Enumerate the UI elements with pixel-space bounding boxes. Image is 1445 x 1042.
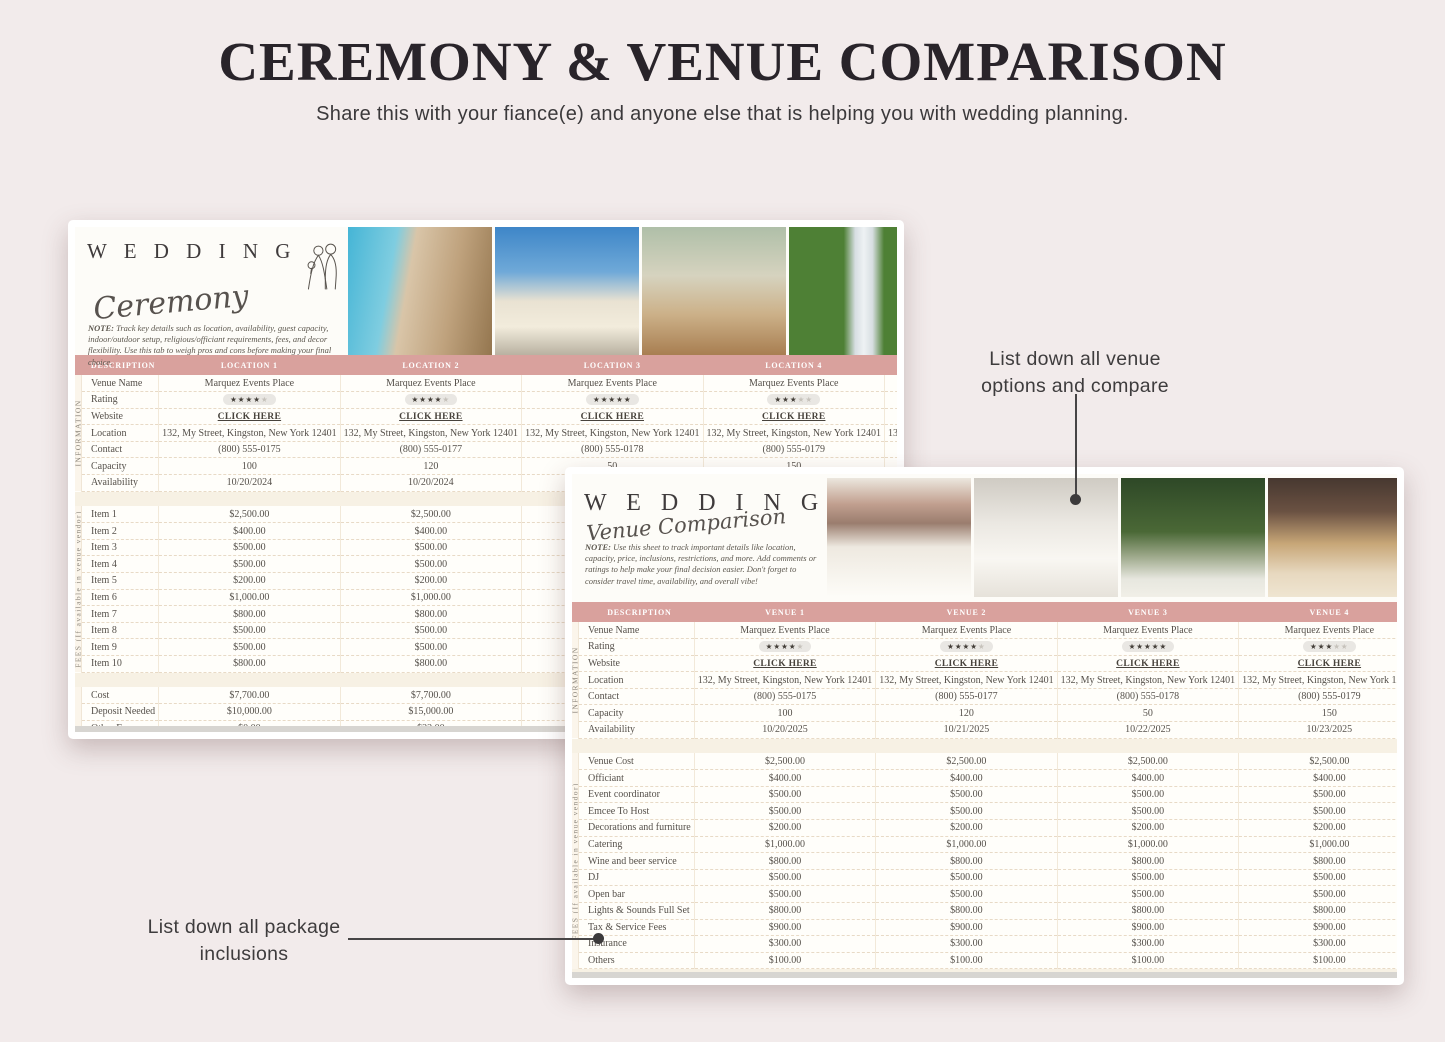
row-label: Location xyxy=(82,425,159,442)
cell: (800) 555-0178 xyxy=(522,441,703,458)
cell: $800.00 xyxy=(1057,853,1238,870)
column-header: LOCATION 2 xyxy=(340,355,521,375)
cell: 100 xyxy=(694,705,875,722)
cell: $200.00 xyxy=(340,573,521,590)
cell: Marquez Events Place xyxy=(876,622,1057,639)
cell: CLICK HERE xyxy=(1057,655,1238,672)
cell: $300.00 xyxy=(694,936,875,953)
cell: $900.00 xyxy=(876,919,1057,936)
cathedral-tower-photo xyxy=(348,227,492,355)
row-label: Item 6 xyxy=(82,589,159,606)
rating-stars: ★★★★★ xyxy=(223,394,276,405)
cell: Marquez Events Place xyxy=(159,375,340,392)
cell: 10/22/2025 xyxy=(1057,722,1238,739)
cell: $200.00 xyxy=(159,573,340,590)
ceremony-sheet-header: W E D D I N G Ceremony NOTE: Track k xyxy=(75,227,897,355)
table-row: Lights & Sounds Full Set$800.00$800.00$8… xyxy=(572,903,1397,920)
row-label: Contact xyxy=(579,688,695,705)
row-label: Item 1 xyxy=(82,506,159,523)
wedding-arch-photo xyxy=(642,227,786,355)
table-row: Contact(800) 555-0175(800) 555-0177(800)… xyxy=(75,441,897,458)
cell: (800) 555-0178 xyxy=(1057,688,1238,705)
website-link[interactable]: CLICK HERE xyxy=(218,412,281,422)
cell: 132, My Street, Kingston, New York 12401 xyxy=(876,672,1057,689)
cell: $2,500.00 xyxy=(1057,753,1238,770)
section-label: INFORMATION xyxy=(75,375,82,491)
row-label: Capacity xyxy=(82,458,159,475)
cell: $500.00 xyxy=(159,539,340,556)
cell: $100.00 xyxy=(1239,952,1397,969)
table-row: Event coordinator$500.00$500.00$500.00$5… xyxy=(572,786,1397,803)
table-row: Tax & Service Fees$900.00$900.00$900.00$… xyxy=(572,919,1397,936)
cell: $7,700.00 xyxy=(159,687,340,704)
cell: $2,500.00 xyxy=(1239,753,1397,770)
cell: 10/20/2025 xyxy=(694,722,875,739)
row-label: Open bar xyxy=(579,886,695,903)
cell: $500.00 xyxy=(1239,786,1397,803)
cell: $2,500.00 xyxy=(876,753,1057,770)
cell: ★★★★★ xyxy=(522,392,703,409)
cell: $400.00 xyxy=(159,523,340,540)
cell: Marquez Events Place xyxy=(884,375,897,392)
column-header: LOCATION 5 xyxy=(884,355,897,375)
cell: ★★★★★ xyxy=(159,392,340,409)
table-row: WebsiteCLICK HERECLICK HERECLICK HERECLI… xyxy=(572,655,1397,672)
venue-sheet-card: W E D D I N G Venue Comparison NOTE: Use… xyxy=(565,467,1404,985)
website-link[interactable]: CLICK HERE xyxy=(1116,659,1179,669)
cell: 150 xyxy=(1239,705,1397,722)
cell: $800.00 xyxy=(340,656,521,673)
aerial-ceremony-photo xyxy=(789,227,897,355)
table-row: FEES (If available in venue vendor)Venue… xyxy=(572,753,1397,770)
table-row: Rating★★★★★★★★★★★★★★★★★★★★★★★★★ xyxy=(75,392,897,409)
cell: $900.00 xyxy=(694,919,875,936)
row-label: Website xyxy=(82,408,159,425)
table-row: Decorations and furniture$200.00$200.00$… xyxy=(572,820,1397,837)
row-label: Website xyxy=(579,655,695,672)
cell: $500.00 xyxy=(694,803,875,820)
table-row: Contact(800) 555-0175(800) 555-0177(800)… xyxy=(572,688,1397,705)
cell: $100.00 xyxy=(1057,952,1238,969)
cell: $900.00 xyxy=(1057,919,1238,936)
row-label: Item 7 xyxy=(82,606,159,623)
row-label: Emcee To Host xyxy=(579,803,695,820)
cell: $500.00 xyxy=(1057,786,1238,803)
cell: Marquez Events Place xyxy=(522,375,703,392)
row-label: Cost xyxy=(82,687,159,704)
cell: $800.00 xyxy=(1057,903,1238,920)
column-header: VENUE 2 xyxy=(876,602,1057,622)
row-label: Item 5 xyxy=(82,573,159,590)
cell: 132, My Street, Kingston, New York 12401 xyxy=(703,425,884,442)
table-row: Capacity10012050150100 xyxy=(572,705,1397,722)
row-label: Location xyxy=(579,672,695,689)
cell: Marquez Events Place xyxy=(340,375,521,392)
cell: ★★★★★ xyxy=(1057,639,1238,656)
cell: ★★★★★ xyxy=(876,639,1057,656)
table-row: Catering$1,000.00$1,000.00$1,000.00$1,00… xyxy=(572,836,1397,853)
cell: $800.00 xyxy=(876,903,1057,920)
cell: $2,500.00 xyxy=(159,506,340,523)
cell: $200.00 xyxy=(1057,820,1238,837)
row-label: Availability xyxy=(579,722,695,739)
cell: $500.00 xyxy=(694,786,875,803)
cell: ★★★★★ xyxy=(694,639,875,656)
cell: $500.00 xyxy=(340,556,521,573)
table-row: INFORMATIONVenue NameMarquez Events Plac… xyxy=(572,622,1397,639)
cell: 10/21/2025 xyxy=(876,722,1057,739)
cell: 120 xyxy=(876,705,1057,722)
cell: $900.00 xyxy=(1239,919,1397,936)
cell: Marquez Events Place xyxy=(694,622,875,639)
package-callout-dot xyxy=(593,933,604,944)
floral-tables-photo xyxy=(974,478,1118,597)
section-label: FEES (If available in venue vendor) xyxy=(572,753,579,969)
table-row: DJ$500.00$500.00$500.00$500.00$500.00 xyxy=(572,869,1397,886)
table-row: Emcee To Host$500.00$500.00$500.00$500.0… xyxy=(572,803,1397,820)
column-header: VENUE 1 xyxy=(694,602,875,622)
cell: $500.00 xyxy=(694,869,875,886)
banquet-hall-photo xyxy=(827,478,971,597)
cell: Marquez Events Place xyxy=(1239,622,1397,639)
row-label: Rating xyxy=(579,639,695,656)
cell: $500.00 xyxy=(1239,803,1397,820)
cell: $800.00 xyxy=(159,656,340,673)
cell: 100 xyxy=(159,458,340,475)
cell: 10/20/2024 xyxy=(159,475,340,492)
row-label: Contact xyxy=(82,441,159,458)
cell: $500.00 xyxy=(876,786,1057,803)
venue-scrollbar[interactable] xyxy=(572,972,1397,978)
row-label: Item 9 xyxy=(82,639,159,656)
cell: $800.00 xyxy=(159,606,340,623)
cell: $500.00 xyxy=(1239,886,1397,903)
row-label: Wine and beer service xyxy=(579,853,695,870)
cell: $400.00 xyxy=(876,770,1057,787)
cell: (800) 555-0177 xyxy=(876,688,1057,705)
cell: $1,000.00 xyxy=(340,589,521,606)
cell: (800) 555-0177 xyxy=(340,441,521,458)
website-link[interactable]: CLICK HERE xyxy=(581,412,644,422)
venue-sheet-header: W E D D I N G Venue Comparison NOTE: Use… xyxy=(572,474,1397,602)
row-label: Catering xyxy=(579,836,695,853)
table-row: Location132, My Street, Kingston, New Yo… xyxy=(75,425,897,442)
cell: (800) 555-0179 xyxy=(703,441,884,458)
row-label: Venue Name xyxy=(82,375,159,392)
table-row: Rating★★★★★★★★★★★★★★★★★★★★★★★★★ xyxy=(572,639,1397,656)
cell: $500.00 xyxy=(159,556,340,573)
venue-table: DESCRIPTIONVENUE 1VENUE 2VENUE 3VENUE 4V… xyxy=(572,602,1397,978)
cell: $500.00 xyxy=(1057,886,1238,903)
column-header: LOCATION 4 xyxy=(703,355,884,375)
cell: $100.00 xyxy=(876,952,1057,969)
row-label: Venue Cost xyxy=(579,753,695,770)
website-link[interactable]: CLICK HERE xyxy=(399,412,462,422)
page-subtitle: Share this with your fiance(e) and anyon… xyxy=(0,103,1445,126)
cell: $500.00 xyxy=(340,622,521,639)
row-label: Capacity xyxy=(579,705,695,722)
cell: 132, My Street, Kingston, New York 12401 xyxy=(159,425,340,442)
cell: CLICK HERE xyxy=(703,408,884,425)
cell: $500.00 xyxy=(876,869,1057,886)
cell: 10/20/2024 xyxy=(340,475,521,492)
cell: CLICK HERE xyxy=(884,408,897,425)
row-label: Item 4 xyxy=(82,556,159,573)
ceremony-logo-word: W E D D I N G xyxy=(87,239,296,264)
garden-ceremony-photo xyxy=(1121,478,1265,597)
ceremony-photos-row xyxy=(348,227,897,355)
cell: CLICK HERE xyxy=(876,655,1057,672)
cell: $1,000.00 xyxy=(159,589,340,606)
table-row: Availability10/20/202510/21/202510/22/20… xyxy=(572,722,1397,739)
cell: $400.00 xyxy=(1239,770,1397,787)
website-link[interactable]: CLICK HERE xyxy=(1298,659,1361,669)
table-row: Open bar$500.00$500.00$500.00$500.00$500… xyxy=(572,886,1397,903)
table-row: Others$100.00$100.00$100.00$100.00$100.0… xyxy=(572,952,1397,969)
cell: CLICK HERE xyxy=(522,408,703,425)
cell: 50 xyxy=(1057,705,1238,722)
cell: $1,000.00 xyxy=(876,836,1057,853)
venue-callout-line xyxy=(1075,394,1077,496)
cell: $400.00 xyxy=(694,770,875,787)
cell: 10/23/2025 xyxy=(1239,722,1397,739)
rating-stars: ★★★★★ xyxy=(767,394,820,405)
cell: $200.00 xyxy=(694,820,875,837)
cell: CLICK HERE xyxy=(694,655,875,672)
cell: $500.00 xyxy=(159,639,340,656)
package-callout-text: List down all package inclusions xyxy=(120,914,368,969)
cell: $300.00 xyxy=(1239,936,1397,953)
row-label: Item 10 xyxy=(82,656,159,673)
column-header: VENUE 4 xyxy=(1239,602,1397,622)
venue-logo-block: W E D D I N G Venue Comparison NOTE: Use… xyxy=(572,474,827,602)
cell: $500.00 xyxy=(1057,803,1238,820)
cell: $200.00 xyxy=(876,820,1057,837)
cell: $100.00 xyxy=(694,952,875,969)
column-header-description: DESCRIPTION xyxy=(579,602,695,622)
row-label: Lights & Sounds Full Set xyxy=(579,903,695,920)
cell: $500.00 xyxy=(1239,869,1397,886)
venue-callout-text: List down all venue options and compare xyxy=(955,346,1195,401)
cell: (800) 555-0175 xyxy=(694,688,875,705)
cell: (800) 555-0175 xyxy=(159,441,340,458)
cell: ★★★★★ xyxy=(340,392,521,409)
cell: (800) 555-0179 xyxy=(1239,688,1397,705)
section-label: INFORMATION xyxy=(572,622,579,738)
cell: $500.00 xyxy=(694,886,875,903)
cell: $500.00 xyxy=(876,886,1057,903)
package-callout-line xyxy=(348,938,598,940)
cell: $15,000.00 xyxy=(340,704,521,721)
cell: CLICK HERE xyxy=(159,408,340,425)
row-label: Decorations and furniture xyxy=(579,820,695,837)
row-label: Rating xyxy=(82,392,159,409)
row-label: Venue Name xyxy=(579,622,695,639)
row-label: Item 2 xyxy=(82,523,159,540)
row-label: Availability xyxy=(82,475,159,492)
cell: $800.00 xyxy=(876,853,1057,870)
cell: 132, My Street, Kingston, New York 12401 xyxy=(340,425,521,442)
cell: ★★★★★ xyxy=(1239,639,1397,656)
cell: $500.00 xyxy=(1057,869,1238,886)
website-link[interactable]: CLICK HERE xyxy=(762,412,825,422)
website-link[interactable]: CLICK HERE xyxy=(753,659,816,669)
cell: 120 xyxy=(340,458,521,475)
page-title: CEREMONY & VENUE COMPARISON xyxy=(0,30,1445,93)
table-row: Wine and beer service$800.00$800.00$800.… xyxy=(572,853,1397,870)
cell: $10,000.00 xyxy=(159,704,340,721)
cell: 132, My Street, Kingston, New York 12401 xyxy=(884,425,897,442)
cell: $200.00 xyxy=(1239,820,1397,837)
white-church-photo xyxy=(495,227,639,355)
table-row: Location132, My Street, Kingston, New Yo… xyxy=(572,672,1397,689)
cell: $400.00 xyxy=(340,523,521,540)
cell: $800.00 xyxy=(694,853,875,870)
cell: Marquez Events Place xyxy=(1057,622,1238,639)
cell: $1,000.00 xyxy=(694,836,875,853)
rating-stars: ★★★★★ xyxy=(940,641,993,652)
cell: $300.00 xyxy=(876,936,1057,953)
gold-ballroom-photo xyxy=(1268,478,1397,597)
website-link[interactable]: CLICK HERE xyxy=(935,659,998,669)
column-header: LOCATION 3 xyxy=(522,355,703,375)
cell: $500.00 xyxy=(340,539,521,556)
cell: 132, My Street, Kingston, New York 12401 xyxy=(1239,672,1397,689)
cell: $800.00 xyxy=(1239,903,1397,920)
cell: $2,500.00 xyxy=(340,506,521,523)
cell: $800.00 xyxy=(694,903,875,920)
cell: (800) 555-0180 xyxy=(884,441,897,458)
row-label: Item 3 xyxy=(82,539,159,556)
rating-stars: ★★★★★ xyxy=(1122,641,1175,652)
cell: $400.00 xyxy=(1057,770,1238,787)
rating-stars: ★★★★★ xyxy=(1303,641,1356,652)
column-header: VENUE 3 xyxy=(1057,602,1238,622)
cell: $500.00 xyxy=(340,639,521,656)
cell: ★★★★★ xyxy=(884,392,897,409)
rating-stars: ★★★★★ xyxy=(405,394,458,405)
cell: $800.00 xyxy=(340,606,521,623)
table-row: Officiant$400.00$400.00$400.00$400.00$40… xyxy=(572,770,1397,787)
cell: CLICK HERE xyxy=(340,408,521,425)
cell: $2,500.00 xyxy=(694,753,875,770)
cell: ★★★★★ xyxy=(703,392,884,409)
cell: $1,000.00 xyxy=(1239,836,1397,853)
venue-photos-row xyxy=(827,474,1397,602)
cell: $1,000.00 xyxy=(1057,836,1238,853)
cell: 132, My Street, Kingston, New York 12401 xyxy=(694,672,875,689)
cell: $7,700.00 xyxy=(340,687,521,704)
separator-row xyxy=(572,738,1397,753)
cell: Marquez Events Place xyxy=(703,375,884,392)
rating-stars: ★★★★★ xyxy=(586,394,639,405)
table-row: Insurance$300.00$300.00$300.00$300.00$30… xyxy=(572,936,1397,953)
cell: CLICK HERE xyxy=(1239,655,1397,672)
venue-callout-dot xyxy=(1070,494,1081,505)
row-label: Event coordinator xyxy=(579,786,695,803)
row-label: Deposit Needed xyxy=(82,704,159,721)
row-label: Others xyxy=(579,952,695,969)
cell: $500.00 xyxy=(876,803,1057,820)
table-row: WebsiteCLICK HERECLICK HERECLICK HERECLI… xyxy=(75,408,897,425)
row-label: Item 8 xyxy=(82,622,159,639)
cell: $300.00 xyxy=(1057,936,1238,953)
ceremony-logo-block: W E D D I N G Ceremony NOTE: Track k xyxy=(75,227,348,355)
row-label: Officiant xyxy=(579,770,695,787)
cell: $800.00 xyxy=(1239,853,1397,870)
row-label: DJ xyxy=(579,869,695,886)
table-row: INFORMATIONVenue NameMarquez Events Plac… xyxy=(75,375,897,392)
rating-stars: ★★★★★ xyxy=(759,641,812,652)
section-label: FEES (If available in venue vendor) xyxy=(75,506,82,672)
cell: 132, My Street, Kingston, New York 12401 xyxy=(1057,672,1238,689)
cell: 132, My Street, Kingston, New York 12401 xyxy=(522,425,703,442)
cell: $500.00 xyxy=(159,622,340,639)
